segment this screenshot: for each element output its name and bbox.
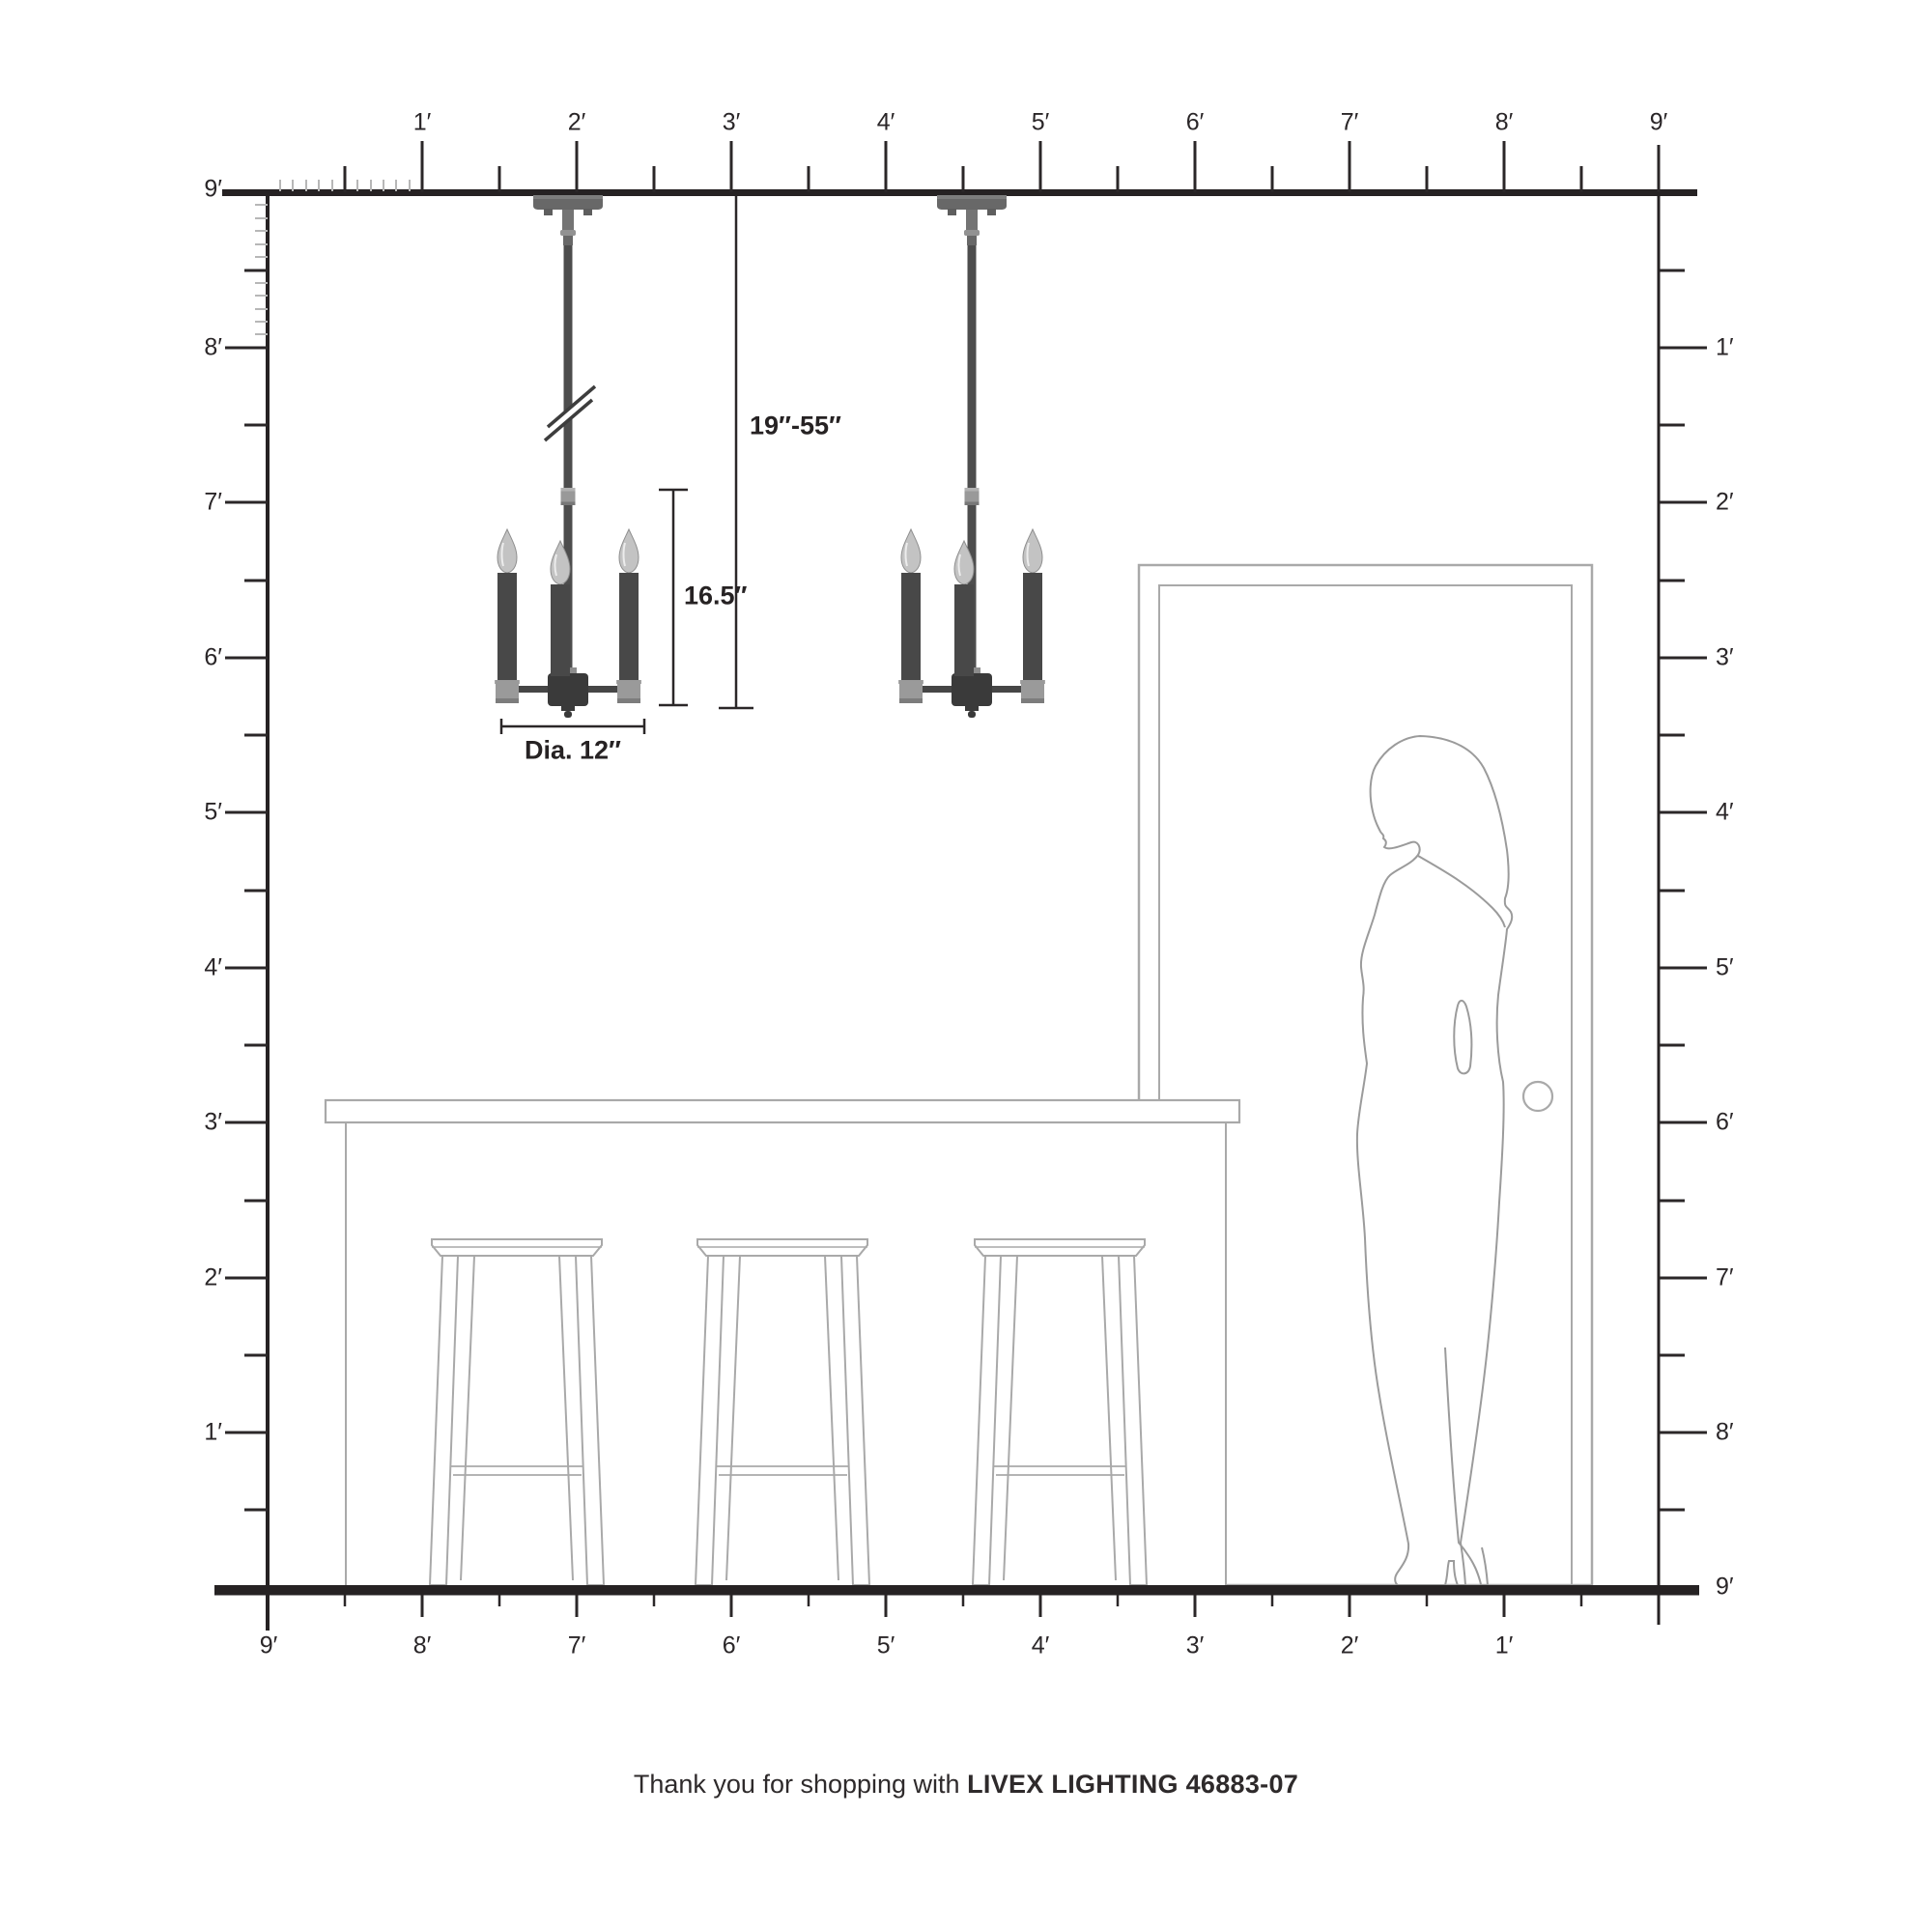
island-countertop: [326, 1100, 1239, 1122]
ruler-label-right-4ft: 4′: [1716, 801, 1734, 825]
ruler-label-right-9ft: 9′: [1716, 1575, 1734, 1600]
ruler-label-right-1ft: 1′: [1716, 336, 1734, 360]
ruler-label-bottom-9ft: 9′: [260, 1634, 278, 1659]
ruler-label-bottom-6ft: 6′: [723, 1634, 741, 1659]
ruler-label-bottom-8ft: 8′: [413, 1634, 432, 1659]
ruler-label-right-6ft: 6′: [1716, 1111, 1734, 1135]
ruler-label-bottom-5ft: 5′: [877, 1634, 895, 1659]
ruler-label-top-6ft: 6′: [1186, 111, 1205, 135]
hang-range-dim-line: [719, 196, 753, 708]
ruler-label-bottom-3ft: 3′: [1186, 1634, 1205, 1659]
fixture-height-label: 16.5″: [684, 582, 747, 611]
ruler-label-top-2ft: 2′: [568, 111, 586, 135]
hang-range-label: 19″-55″: [750, 411, 841, 441]
ruler-label-left-7ft: 7′: [145, 491, 222, 515]
ruler-label-left-1ft: 1′: [145, 1421, 222, 1445]
ruler-label-bottom-2ft: 2′: [1341, 1634, 1359, 1659]
ruler-label-top-4ft: 4′: [877, 111, 895, 135]
ruler-label-top-5ft: 5′: [1032, 111, 1050, 135]
floor-line: [214, 1585, 1699, 1596]
ruler-label-left-8ft: 8′: [145, 336, 222, 360]
ruler-label-top-3ft: 3′: [723, 111, 741, 135]
ruler-label-top-9ft: 9′: [1650, 111, 1668, 135]
footer-brand-model: LIVEX LIGHTING 46883-07: [967, 1770, 1298, 1799]
footer-regular-text: Thank you for shopping with: [634, 1770, 960, 1799]
ruler-label-left-4ft: 4′: [145, 956, 222, 980]
ruler-label-right-7ft: 7′: [1716, 1266, 1734, 1291]
scene-drawing: [0, 0, 1932, 1929]
ruler-label-top-8ft: 8′: [1495, 111, 1514, 135]
ruler-label-bottom-1ft: 1′: [1495, 1634, 1514, 1659]
ruler-label-right-5ft: 5′: [1716, 956, 1734, 980]
ruler-label-top-7ft: 7′: [1341, 111, 1359, 135]
ruler-label-left-5ft: 5′: [145, 801, 222, 825]
ruler-label-right-3ft: 3′: [1716, 646, 1734, 670]
door-knob: [1523, 1082, 1552, 1111]
ruler-label-right-8ft: 8′: [1716, 1421, 1734, 1445]
footer-message: Thank you for shopping with LIVEX LIGHTI…: [0, 1770, 1932, 1800]
fixture-diameter-label: Dia. 12″: [525, 736, 621, 766]
ruler-label-right-2ft: 2′: [1716, 491, 1734, 515]
diameter-dim-line: [501, 719, 644, 734]
ruler-label-left-3ft: 3′: [145, 1111, 222, 1135]
ruler-label-left-6ft: 6′: [145, 646, 222, 670]
ruler-label-top-1ft: 1′: [413, 111, 432, 135]
ruler-label-left-9ft: 9′: [145, 178, 222, 202]
ruler-label-left-2ft: 2′: [145, 1266, 222, 1291]
ruler-label-bottom-7ft: 7′: [568, 1634, 586, 1659]
chandelier-right: [898, 195, 1045, 718]
ruler-label-bottom-4ft: 4′: [1032, 1634, 1050, 1659]
chandelier-left: [495, 195, 641, 718]
woman-silhouette: [1357, 736, 1512, 1585]
ceiling-line: [222, 189, 1697, 196]
dimension-diagram: 1′ 2′ 3′ 4′ 5′ 6′ 7′ 8′ 9′ 9′ 8′ 7′ 6′ 5…: [0, 0, 1932, 1929]
